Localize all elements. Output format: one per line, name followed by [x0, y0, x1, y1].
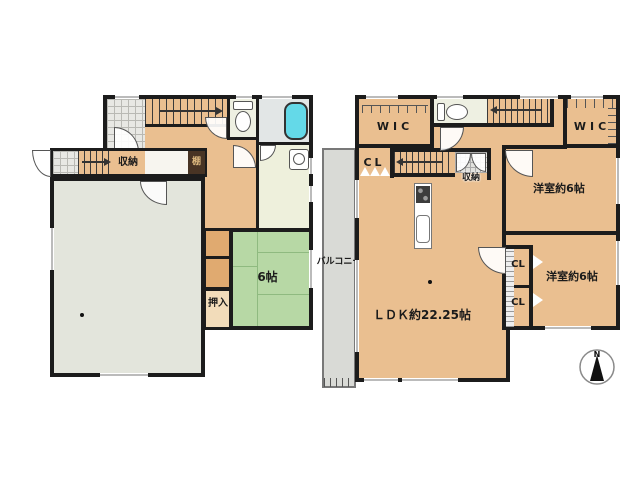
- 2f-stairwell-arrowhead: [396, 158, 403, 166]
- compass-north-label: N: [594, 350, 601, 359]
- tatami-line: [258, 252, 309, 253]
- 1f-shelf-label: 棚: [188, 158, 205, 168]
- 2f-stairs-arrowhead: [490, 106, 497, 114]
- window: [262, 95, 292, 99]
- 2f-wic-right-label: WIC: [566, 121, 618, 133]
- window: [355, 260, 359, 352]
- tatami-line: [258, 294, 309, 295]
- 1f-oshiire-label: 押入: [204, 298, 232, 309]
- window: [366, 95, 398, 99]
- 1f-large-room: [50, 177, 205, 377]
- window: [545, 326, 591, 330]
- 2f-balcony: [322, 148, 356, 388]
- window: [100, 373, 148, 377]
- wall-segment: [563, 144, 620, 148]
- stove-icon: [416, 186, 430, 203]
- wall-segment: [550, 95, 554, 127]
- toilet-icon: [233, 101, 253, 110]
- window: [309, 158, 313, 174]
- window: [309, 186, 313, 202]
- 1f-porch-tile: [53, 151, 78, 174]
- window: [520, 95, 558, 99]
- wall-segment: [227, 99, 230, 140]
- window: [616, 241, 620, 285]
- floor-plan-image: 収納 棚 押入 6帖 バルコニー: [0, 0, 640, 480]
- 2f-bedroom-top-label: 洋室約6帖: [503, 183, 615, 195]
- wic-hanger-rail: [362, 105, 428, 106]
- 2f-wic-left-label: WIC: [367, 121, 423, 133]
- wall-segment: [502, 145, 567, 149]
- 2f-closet-lower-label: CL: [506, 297, 530, 308]
- toilet-bowl-icon: [235, 111, 251, 132]
- wic-hanger-icon: [362, 105, 428, 113]
- 2f-ldk-label: ＬＤＫ約22.25帖: [357, 309, 487, 322]
- wall-segment: [506, 330, 510, 382]
- wall-segment: [206, 256, 230, 259]
- compass-icon: N: [578, 348, 616, 386]
- kitchen-sink-icon: [416, 215, 430, 243]
- sink-basin-icon: [293, 153, 305, 165]
- window: [50, 228, 54, 270]
- toilet-bowl-icon: [446, 104, 468, 120]
- 2f-stairwell-arrow: [402, 161, 442, 163]
- window: [437, 95, 463, 99]
- 2f-closet-upper-label: CL: [506, 259, 530, 270]
- room-dot: [428, 280, 432, 284]
- wall-segment: [390, 173, 455, 177]
- window: [571, 95, 603, 99]
- 1f-tatami-label: 6帖: [240, 271, 295, 284]
- tatami-line: [233, 266, 257, 267]
- window: [355, 180, 359, 218]
- 1f-stairs-arrowhead: [216, 107, 223, 115]
- 1f-stairs-arrow: [160, 110, 216, 112]
- 1f-entry-arrow: [82, 161, 106, 163]
- 1f-storage-label: 収納: [110, 157, 146, 168]
- 2f-stairs-arrow: [496, 109, 542, 111]
- wic-hanger-icon: [567, 99, 616, 108]
- window: [115, 95, 139, 99]
- wall-segment: [227, 137, 258, 140]
- 2f-hall-closet-label: CL: [358, 157, 390, 169]
- toilet-icon: [437, 103, 445, 121]
- balcony-railing: [324, 378, 354, 387]
- bathtub-icon: [284, 102, 308, 140]
- window: [364, 378, 398, 382]
- window: [402, 378, 458, 382]
- room-dot: [80, 313, 84, 317]
- 2f-bedroom-bottom-label: 洋室約6帖: [532, 271, 612, 283]
- compass: N: [578, 348, 616, 386]
- wall-segment: [502, 231, 620, 235]
- window: [236, 95, 252, 99]
- window: [309, 250, 313, 288]
- window: [616, 158, 620, 204]
- 1f-corridor-cell: [145, 151, 188, 174]
- 2f-storage-label: 収納: [452, 174, 490, 184]
- entrance-door-arc: [32, 150, 51, 177]
